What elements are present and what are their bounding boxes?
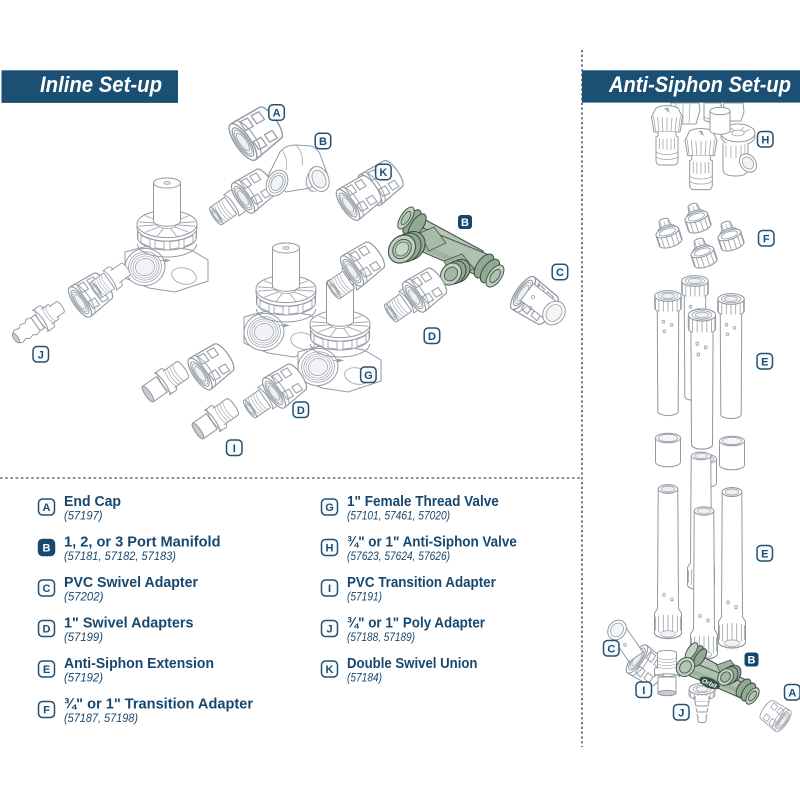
- svg-text:(57101, 57461, 57020): (57101, 57461, 57020): [347, 509, 450, 523]
- svg-text:End Cap: End Cap: [64, 493, 121, 510]
- svg-text:I: I: [233, 443, 236, 455]
- svg-text:A: A: [788, 687, 796, 699]
- svg-text:(57181, 57182, 57183): (57181, 57182, 57183): [64, 549, 176, 563]
- svg-text:K: K: [326, 664, 334, 676]
- svg-text:I: I: [642, 685, 645, 697]
- svg-text:J: J: [326, 624, 332, 636]
- svg-text:B: B: [461, 217, 469, 229]
- svg-text:PVC Transition Adapter: PVC Transition Adapter: [347, 574, 496, 591]
- svg-text:H: H: [761, 134, 769, 146]
- svg-text:C: C: [607, 643, 615, 655]
- svg-text:(57202): (57202): [64, 590, 104, 604]
- svg-text:G: G: [364, 370, 373, 382]
- svg-text:A: A: [43, 502, 51, 514]
- svg-text:¾" or 1" Transition Adapter: ¾" or 1" Transition Adapter: [64, 696, 253, 713]
- svg-text:E: E: [43, 664, 50, 676]
- svg-text:A: A: [273, 108, 281, 120]
- svg-text:(57199): (57199): [64, 630, 103, 644]
- svg-text:B: B: [43, 543, 51, 555]
- svg-text:(57191): (57191): [347, 590, 382, 604]
- svg-text:K: K: [379, 167, 387, 179]
- svg-text:Anti-Siphon Extension: Anti-Siphon Extension: [64, 655, 214, 672]
- svg-text:1, 2, or 3 Port Manifold: 1, 2, or 3 Port Manifold: [64, 534, 221, 551]
- svg-text:¾" or 1" Anti-Siphon Valve: ¾" or 1" Anti-Siphon Valve: [347, 534, 517, 551]
- svg-text:C: C: [556, 267, 564, 279]
- svg-text:1" Female Thread Valve: 1" Female Thread Valve: [347, 493, 499, 510]
- svg-text:J: J: [38, 349, 44, 361]
- svg-text:B: B: [319, 136, 327, 148]
- svg-text:1" Swivel Adapters: 1" Swivel Adapters: [64, 615, 194, 632]
- svg-text:PVC Swivel Adapter: PVC Swivel Adapter: [64, 574, 198, 591]
- svg-text:D: D: [43, 624, 51, 636]
- svg-text:F: F: [763, 233, 770, 245]
- svg-text:Double Swivel Union: Double Swivel Union: [347, 655, 478, 672]
- svg-text:(57623, 57624, 57626): (57623, 57624, 57626): [347, 549, 450, 563]
- svg-text:B: B: [748, 654, 756, 666]
- svg-text:D: D: [297, 405, 305, 417]
- svg-text:E: E: [761, 356, 768, 368]
- svg-text:(57188, 57189): (57188, 57189): [347, 630, 415, 644]
- svg-text:(57197): (57197): [64, 509, 103, 523]
- svg-text:¾" or 1" Poly Adapter: ¾" or 1" Poly Adapter: [347, 615, 485, 632]
- svg-text:J: J: [678, 707, 684, 719]
- svg-text:(57187, 57198): (57187, 57198): [64, 711, 138, 725]
- svg-text:Inline Set-up: Inline Set-up: [40, 72, 162, 97]
- svg-text:D: D: [428, 331, 436, 343]
- svg-text:F: F: [43, 705, 50, 717]
- svg-text:Anti-Siphon Set-up: Anti-Siphon Set-up: [608, 72, 791, 97]
- svg-text:E: E: [761, 548, 768, 560]
- svg-text:(57184): (57184): [347, 671, 382, 685]
- svg-text:G: G: [325, 502, 334, 514]
- svg-text:H: H: [326, 543, 334, 555]
- svg-text:I: I: [328, 583, 331, 595]
- svg-text:(57192): (57192): [64, 671, 103, 685]
- svg-text:C: C: [43, 583, 51, 595]
